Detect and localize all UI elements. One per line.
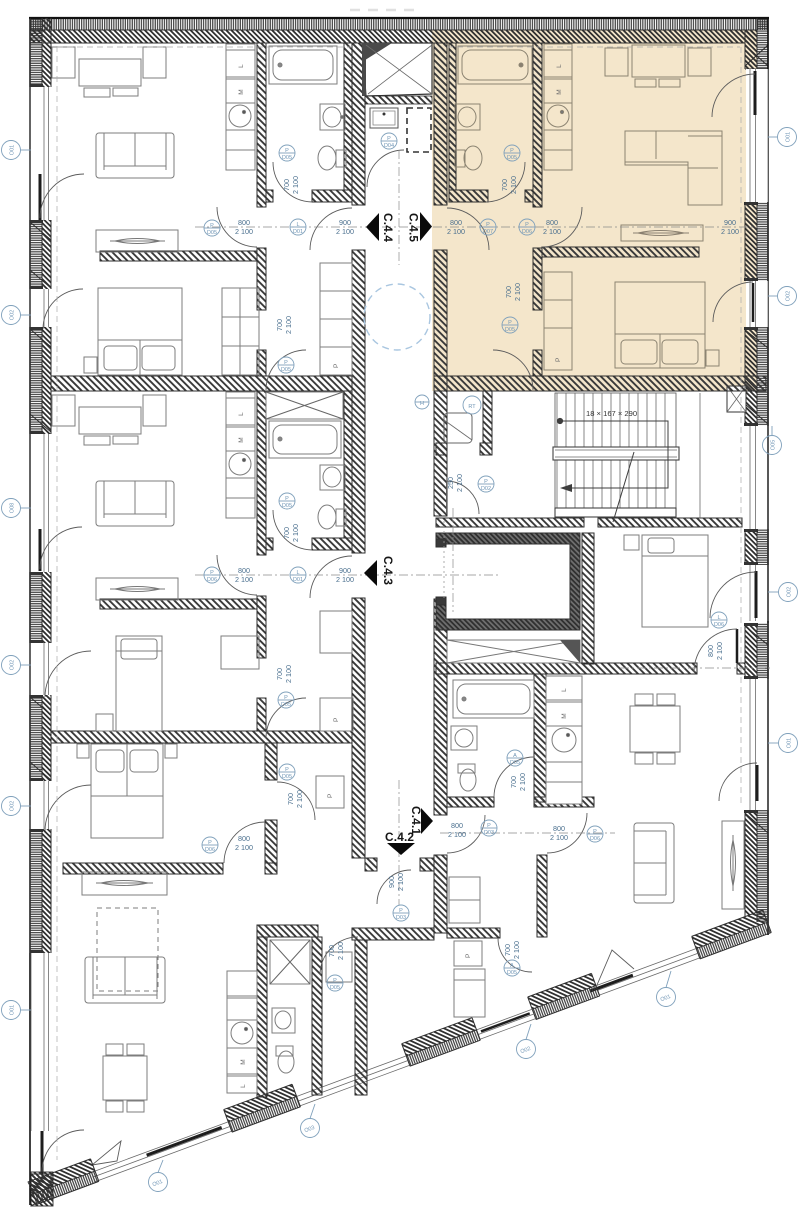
svg-text:O01: O01 — [10, 145, 16, 155]
svg-text:2 100: 2 100 — [235, 227, 253, 236]
svg-text:2 100: 2 100 — [284, 665, 293, 683]
svg-text:L: L — [717, 615, 720, 621]
svg-text:D05: D05 — [507, 970, 517, 976]
svg-text:800: 800 — [553, 824, 565, 833]
svg-text:800: 800 — [546, 218, 558, 227]
svg-text:O05: O05 — [771, 440, 777, 450]
svg-text:O02: O02 — [786, 291, 792, 301]
svg-text:D06: D06 — [714, 622, 724, 628]
svg-text:D05: D05 — [282, 503, 292, 509]
svg-text:2 100: 2 100 — [447, 227, 465, 236]
svg-text:800: 800 — [451, 821, 463, 830]
svg-text:D05: D05 — [282, 774, 292, 780]
svg-text:2 100: 2 100 — [235, 843, 253, 852]
svg-text:P: P — [593, 829, 597, 835]
svg-text:O01: O01 — [786, 132, 792, 142]
svg-text:2 100: 2 100 — [448, 830, 466, 839]
svg-text:H: H — [420, 401, 424, 407]
svg-text:O02: O02 — [10, 660, 16, 670]
svg-text:RT: RT — [468, 404, 476, 410]
svg-text:D04: D04 — [384, 143, 394, 149]
svg-text:D06: D06 — [205, 847, 215, 853]
svg-text:D05: D05 — [281, 367, 291, 373]
svg-text:D06: D06 — [522, 229, 532, 235]
svg-text:P: P — [555, 358, 562, 362]
svg-text:D05: D05 — [505, 327, 515, 333]
svg-text:P: P — [284, 360, 288, 366]
svg-text:2 100: 2 100 — [455, 474, 464, 492]
svg-text:P: P — [387, 136, 391, 142]
svg-text:P: P — [285, 496, 289, 502]
svg-text:P: P — [486, 222, 490, 228]
svg-text:2 100: 2 100 — [543, 227, 561, 236]
svg-text:2 100: 2 100 — [291, 176, 300, 194]
svg-text:P: P — [333, 978, 337, 984]
svg-text:D03: D03 — [484, 830, 494, 836]
svg-text:D06: D06 — [590, 836, 600, 842]
svg-text:P: P — [285, 767, 289, 773]
svg-text:P: P — [333, 364, 340, 368]
svg-text:C.4.3: C.4.3 — [381, 556, 395, 585]
svg-text:P: P — [333, 718, 340, 722]
svg-text:900: 900 — [387, 876, 396, 888]
svg-text:O01: O01 — [787, 738, 793, 748]
svg-text:700: 700 — [286, 793, 295, 805]
svg-text:900: 900 — [339, 218, 351, 227]
svg-text:L: L — [561, 688, 568, 692]
svg-text:700: 700 — [275, 319, 284, 331]
svg-text:P: P — [208, 840, 212, 846]
svg-text:P: P — [327, 794, 334, 798]
svg-text:700: 700 — [504, 286, 513, 298]
svg-text:P: P — [510, 148, 514, 154]
svg-text:P: P — [484, 479, 488, 485]
svg-text:A: A — [510, 963, 514, 969]
svg-text:M: M — [238, 89, 245, 94]
svg-text:P: P — [284, 695, 288, 701]
svg-text:P: P — [487, 823, 491, 829]
svg-text:A: A — [513, 753, 517, 759]
svg-text:2 100: 2 100 — [284, 316, 293, 334]
svg-text:2 100: 2 100 — [336, 227, 354, 236]
svg-text:700: 700 — [282, 179, 291, 191]
svg-text:D07: D07 — [483, 229, 493, 235]
svg-text:P: P — [525, 222, 529, 228]
svg-text:D01: D01 — [293, 577, 303, 583]
svg-text:2 100: 2 100 — [295, 790, 304, 808]
svg-text:2 100: 2 100 — [513, 283, 522, 301]
svg-text:D05: D05 — [281, 702, 291, 708]
svg-text:2 100: 2 100 — [721, 227, 739, 236]
svg-text:800: 800 — [238, 566, 250, 575]
svg-text:P: P — [508, 320, 512, 326]
svg-text:M: M — [556, 89, 563, 94]
svg-text:D02: D02 — [481, 486, 491, 492]
svg-text:2 100: 2 100 — [509, 176, 518, 194]
svg-text:O01: O01 — [10, 1005, 16, 1015]
svg-text:C.4.5: C.4.5 — [407, 213, 421, 242]
svg-text:2 100: 2 100 — [550, 833, 568, 842]
svg-text:D05: D05 — [207, 230, 217, 236]
svg-text:P: P — [399, 908, 403, 914]
svg-text:2 100: 2 100 — [336, 942, 345, 960]
svg-text:700: 700 — [509, 776, 518, 788]
svg-text:L: L — [556, 64, 563, 68]
svg-text:P: P — [465, 954, 472, 958]
svg-text:800: 800 — [238, 218, 250, 227]
svg-text:O08: O08 — [10, 503, 16, 513]
svg-text:2 100: 2 100 — [715, 642, 724, 660]
svg-text:P: P — [210, 223, 214, 229]
svg-text:700: 700 — [275, 668, 284, 680]
svg-text:C.4.2: C.4.2 — [385, 830, 414, 844]
svg-text:D05: D05 — [507, 155, 517, 161]
svg-text:D06: D06 — [207, 577, 217, 583]
svg-text:700: 700 — [503, 944, 512, 956]
svg-text:D05: D05 — [330, 985, 340, 991]
svg-text:2 100: 2 100 — [235, 575, 253, 584]
svg-text:700: 700 — [327, 945, 336, 957]
svg-text:D01: D01 — [293, 229, 303, 235]
svg-text:2 100: 2 100 — [518, 773, 527, 791]
svg-text:M: M — [561, 713, 568, 718]
svg-text:M: M — [238, 437, 245, 442]
svg-text:D05: D05 — [510, 760, 520, 766]
svg-text:D05: D05 — [282, 155, 292, 161]
svg-text:L: L — [296, 570, 299, 576]
svg-text:O02: O02 — [787, 587, 793, 597]
svg-text:700: 700 — [282, 527, 291, 539]
svg-text:900: 900 — [339, 566, 351, 575]
svg-text:L: L — [240, 1084, 247, 1088]
svg-text:C.4.4: C.4.4 — [381, 213, 395, 242]
svg-text:M: M — [240, 1059, 247, 1064]
svg-text:800: 800 — [706, 645, 715, 657]
svg-text:2 100: 2 100 — [512, 941, 521, 959]
svg-text:2 100: 2 100 — [291, 524, 300, 542]
svg-text:2 100: 2 100 — [336, 575, 354, 584]
svg-text:900: 900 — [724, 218, 736, 227]
svg-text:250: 250 — [446, 477, 455, 489]
svg-text:P: P — [210, 570, 214, 576]
svg-text:D03: D03 — [396, 915, 406, 921]
svg-text:700: 700 — [500, 179, 509, 191]
svg-text:P: P — [285, 148, 289, 154]
svg-text:2 100: 2 100 — [396, 873, 405, 891]
svg-text:L: L — [238, 412, 245, 416]
svg-text:800: 800 — [450, 218, 462, 227]
svg-text:800: 800 — [238, 834, 250, 843]
svg-text:18 × 167 × 290: 18 × 167 × 290 — [586, 409, 637, 418]
svg-text:L: L — [238, 64, 245, 68]
svg-text:L: L — [296, 222, 299, 228]
svg-text:O02: O02 — [10, 310, 16, 320]
svg-text:O02: O02 — [10, 801, 16, 811]
